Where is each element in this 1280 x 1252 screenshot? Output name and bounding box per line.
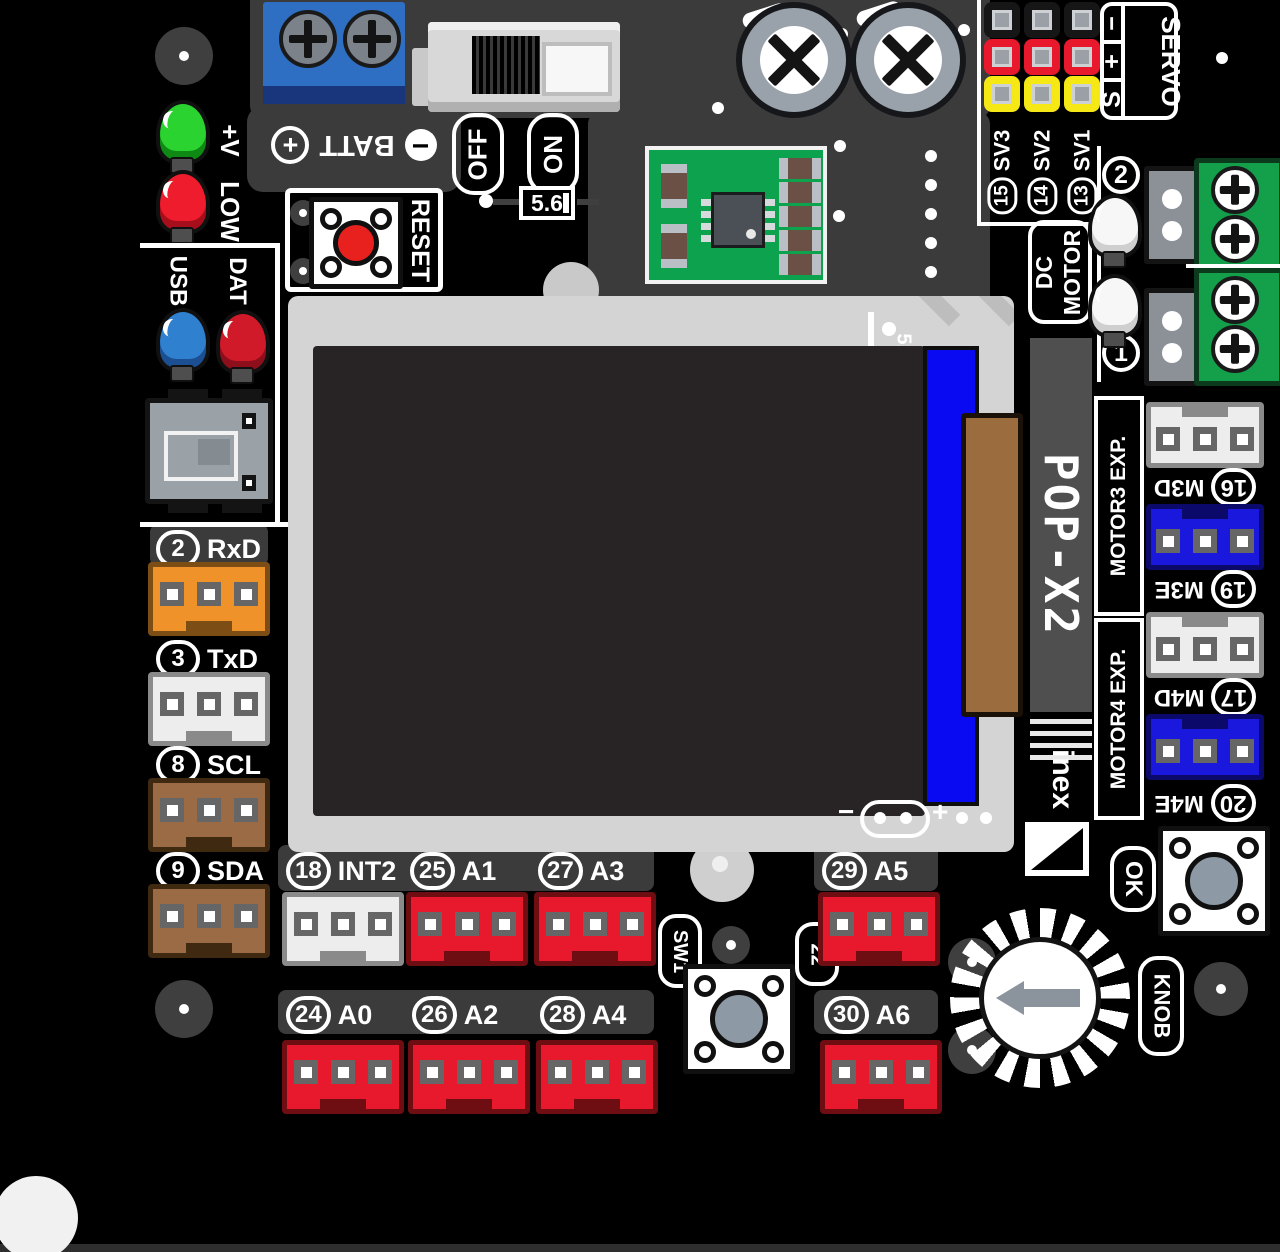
dat-led-icon — [216, 310, 270, 374]
on-label: ON — [527, 113, 579, 195]
sw1-button-cap[interactable] — [710, 990, 768, 1048]
diode-band-icon — [563, 193, 569, 213]
usb-pin — [242, 475, 256, 491]
sw1-button[interactable] — [683, 964, 795, 1074]
motor3-exp-box: MOTOR3 EXP. — [1094, 396, 1144, 616]
pop-x2-board-illustration: − BATT + OFF ON 5.6 RESET +V LOW USB DAT — [0, 0, 1280, 1252]
usb-tab — [222, 389, 262, 399]
model-name: POP-X2 — [1019, 380, 1103, 710]
diode-lead — [493, 199, 519, 205]
reset-button[interactable] — [309, 197, 403, 289]
servo-vcc-pin-icon — [984, 39, 1020, 75]
motor4-exp-title: MOTOR4 EXP. — [1107, 649, 1131, 789]
m4d-connector — [1146, 612, 1264, 678]
servo-vcc-pin-icon — [1024, 39, 1060, 75]
ok-label: OK — [1110, 846, 1156, 912]
pin1-dot-icon — [746, 229, 756, 239]
silk-line — [1097, 146, 1101, 382]
silk-line — [275, 243, 280, 527]
motor4-exp-box: MOTOR4 EXP. — [1094, 618, 1144, 820]
servo-plus-label: + — [1098, 54, 1127, 69]
green-module — [645, 146, 827, 284]
txd-connector — [148, 672, 270, 746]
usb-connector — [145, 398, 273, 504]
servo-minus-label: − — [1098, 16, 1127, 31]
a1-label: 25A1 — [410, 852, 496, 890]
smd-capacitor-icon — [779, 206, 821, 227]
knob-dial[interactable] — [950, 908, 1130, 1088]
usb-tab — [168, 389, 208, 399]
a1-connector — [406, 892, 528, 966]
mounting-hole-icon — [0, 1176, 78, 1252]
pad-dot-icon — [874, 812, 886, 824]
off-label: OFF — [452, 113, 504, 195]
usb-label: USB — [160, 252, 194, 310]
battery-text: BATT — [319, 129, 394, 162]
lcd-connector — [961, 413, 1023, 717]
rxd-connector — [148, 562, 270, 636]
m4d-label: 17M4D — [1146, 678, 1264, 716]
silk-line — [977, 0, 981, 226]
silk-dot-icon — [925, 266, 937, 278]
a0-connector — [282, 1040, 404, 1114]
knob-arrow-bar-icon — [1024, 989, 1080, 1007]
a3-label: 27A3 — [538, 852, 624, 890]
motor1-terminal — [1194, 268, 1280, 386]
mounting-via-icon — [155, 980, 213, 1038]
scl-connector — [148, 778, 270, 852]
reset-label: RESET — [400, 190, 440, 290]
diode-lead — [577, 199, 599, 205]
servo-title: SERVO — [1154, 16, 1185, 107]
silk-dot-icon — [833, 210, 845, 222]
via-icon — [712, 926, 750, 964]
int2-label: 18INT2 — [286, 852, 396, 890]
power-led-icon — [156, 100, 210, 164]
silk-dot-icon — [925, 179, 937, 191]
dc-motor-label-box: DC MOTOR — [1028, 220, 1092, 324]
a2-label: 26A2 — [412, 996, 498, 1034]
usb-led-icon — [156, 308, 210, 372]
silk-line — [140, 243, 280, 248]
battery-minus-icon: − — [405, 129, 437, 161]
a3-connector — [534, 892, 656, 966]
sv2-label: 14SV2 — [1024, 118, 1060, 226]
servo-legend-box: − + S SERVO — [1100, 2, 1178, 120]
screw-icon — [1211, 325, 1259, 373]
m3e-label: 19M3E — [1146, 570, 1264, 608]
smd-resistor-icon — [661, 224, 687, 268]
silk-tick — [868, 312, 874, 348]
reset-button-cap[interactable] — [333, 220, 379, 266]
a4-label: 28A4 — [540, 996, 626, 1034]
board-bottom-edge — [0, 1244, 1280, 1252]
power-switch[interactable] — [428, 22, 620, 112]
diode-pad-icon — [479, 194, 493, 208]
battery-plus-icon: + — [271, 126, 309, 164]
m3d-connector — [1146, 402, 1264, 468]
silk-dot-icon — [925, 150, 937, 162]
sda-connector — [148, 884, 270, 958]
usb-pin — [242, 413, 256, 429]
screw-icon — [1211, 166, 1259, 214]
switch-slider[interactable] — [472, 36, 540, 94]
int2-connector — [282, 892, 404, 966]
mounting-via-icon — [155, 27, 213, 85]
dat-label: DAT — [220, 252, 254, 310]
pad-dot-icon — [900, 812, 912, 824]
motor3-exp-title: MOTOR3 EXP. — [1107, 436, 1131, 576]
pad-minus-label: − — [838, 796, 854, 828]
smd-capacitor-icon — [779, 158, 821, 179]
pad-plus-label: + — [932, 796, 948, 828]
silk-dot-icon — [712, 102, 724, 114]
silk-dot-icon — [834, 140, 846, 152]
usb-port-fill — [198, 439, 230, 465]
m3d-label: 16M3D — [1146, 468, 1264, 506]
usb-tab — [222, 503, 262, 513]
knob-label: KNOB — [1138, 956, 1184, 1056]
smd-capacitor-icon — [779, 230, 821, 251]
a5-connector — [818, 892, 940, 966]
m4e-connector — [1146, 714, 1264, 780]
a5-label: 29A5 — [822, 852, 908, 890]
motor1-header — [1144, 288, 1200, 386]
screw-icon — [343, 10, 401, 68]
ok-button-cap[interactable] — [1185, 852, 1243, 910]
terminal-shadow — [263, 86, 405, 104]
motor2-led-icon — [1088, 194, 1142, 258]
switch-recess — [542, 42, 612, 96]
motor2-header — [1144, 166, 1200, 264]
pad-dot-icon — [980, 812, 992, 824]
m4e-label: 20M4E — [1146, 784, 1264, 822]
m3e-connector — [1146, 504, 1264, 570]
sv3-label: 15SV3 — [984, 118, 1020, 226]
smd-capacitor-icon — [779, 182, 821, 203]
a0-label: 24A0 — [286, 996, 372, 1034]
smd-resistor-icon — [661, 164, 687, 208]
servo-sig-pin-icon — [1024, 76, 1060, 112]
silk-dot-icon — [925, 208, 937, 220]
motor1-led-icon — [1088, 274, 1142, 338]
maker-logo-icon — [1025, 822, 1089, 876]
servo-gnd-pin-icon — [1024, 2, 1060, 38]
low-label: LOW — [212, 168, 246, 254]
servo-signal-label: S — [1098, 91, 1127, 108]
vplus-label: +V — [212, 108, 246, 172]
smd-capacitor-icon — [779, 254, 821, 275]
knob-arrow-icon — [996, 981, 1024, 1015]
servo-sig-pin-icon — [1064, 76, 1100, 112]
motor2-terminal — [1194, 158, 1280, 276]
pad-outline — [860, 800, 930, 838]
silk-dot-icon — [925, 237, 937, 249]
diode-component: 5.6 — [519, 186, 575, 220]
dc-motor-line2: MOTOR — [1060, 229, 1087, 314]
servo-gnd-pin-icon — [1064, 2, 1100, 38]
motor2-number: 2 — [1102, 156, 1140, 194]
screw-icon — [1211, 215, 1259, 263]
capacitor-top-icon — [850, 2, 966, 118]
pad-dot-icon — [956, 812, 968, 824]
servo-vcc-pin-icon — [1064, 39, 1100, 75]
knob-face[interactable] — [979, 937, 1101, 1059]
a4-connector — [536, 1040, 658, 1114]
low-battery-led-icon — [156, 170, 210, 234]
a2-connector — [408, 1040, 530, 1114]
dc-motor-line1: DC — [1032, 255, 1059, 288]
servo-gnd-pin-icon — [984, 2, 1020, 38]
diode-value: 5.6 — [531, 190, 563, 217]
lcd-screen — [313, 346, 925, 816]
battery-terminal-block — [263, 2, 405, 104]
pad-dot-icon — [712, 856, 728, 872]
battery-silk-label: − BATT + — [262, 126, 446, 164]
maker-logo-text: inex — [1042, 740, 1082, 818]
servo-sig-pin-icon — [984, 76, 1020, 112]
ok-button[interactable] — [1158, 826, 1270, 936]
screw-icon — [279, 10, 337, 68]
a6-label: 30A6 — [824, 996, 910, 1034]
ic-chip-icon — [711, 192, 765, 248]
a6-connector — [820, 1040, 942, 1114]
silk-dot-icon — [1216, 52, 1228, 64]
usb-tab — [168, 503, 208, 513]
screw-icon — [1211, 276, 1259, 324]
mounting-via-icon — [1194, 962, 1248, 1016]
capacitor-top-icon — [736, 2, 852, 118]
